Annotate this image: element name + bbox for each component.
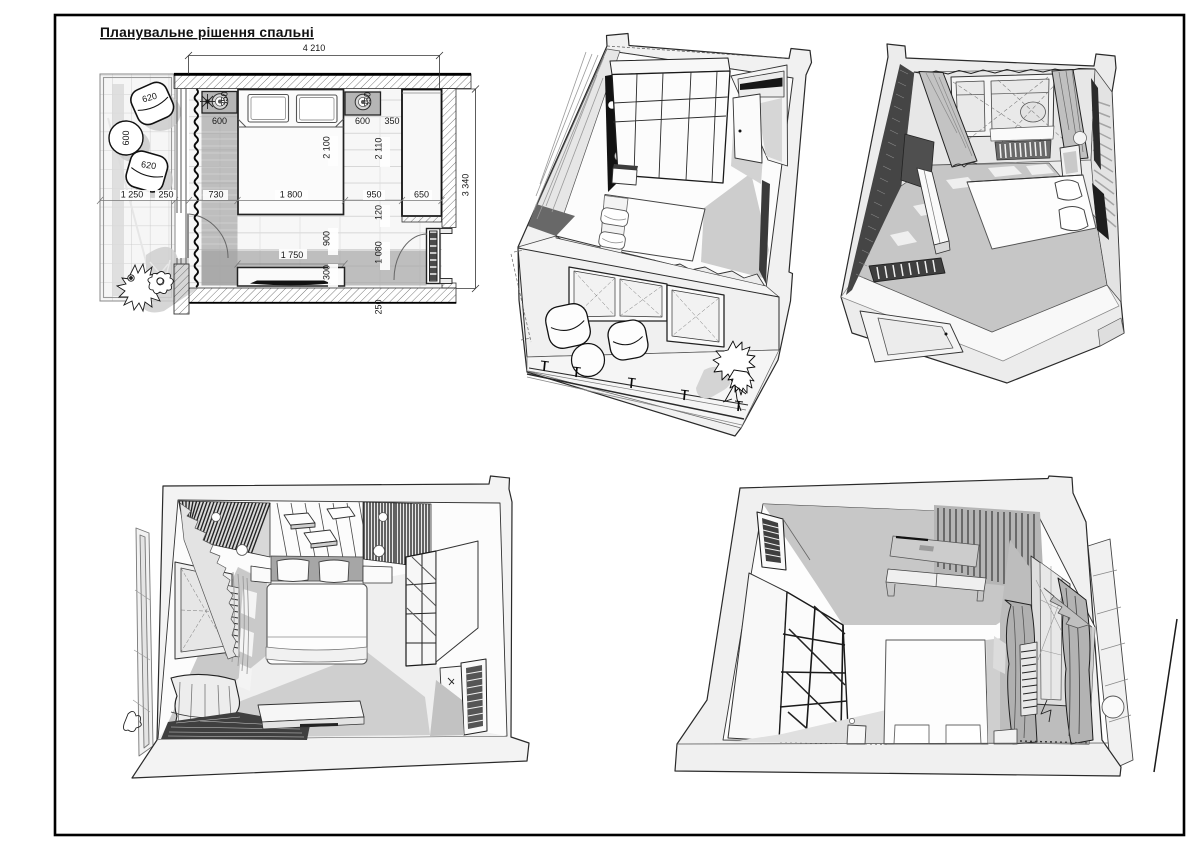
- svg-text:900: 900: [322, 231, 332, 246]
- svg-text:350: 350: [363, 92, 373, 107]
- svg-text:4 210: 4 210: [303, 43, 326, 53]
- svg-text:1 250: 1 250: [121, 190, 144, 200]
- svg-text:2 110: 2 110: [374, 138, 384, 160]
- svg-text:650: 650: [414, 190, 429, 200]
- svg-text:730: 730: [208, 190, 223, 200]
- svg-text:120: 120: [374, 205, 384, 220]
- svg-text:950: 950: [366, 190, 381, 200]
- svg-text:1 080: 1 080: [374, 241, 384, 264]
- svg-text:350: 350: [384, 116, 399, 126]
- svg-text:350: 350: [220, 91, 230, 106]
- svg-text:3 340: 3 340: [461, 174, 471, 197]
- svg-text:2 100: 2 100: [322, 136, 332, 159]
- svg-text:620: 620: [141, 159, 157, 171]
- svg-text:300: 300: [322, 265, 332, 280]
- svg-text:1 750: 1 750: [281, 250, 304, 260]
- svg-text:1 800: 1 800: [280, 190, 303, 200]
- svg-text:600: 600: [355, 116, 370, 126]
- svg-text:600: 600: [212, 116, 227, 126]
- svg-text:250: 250: [374, 299, 384, 314]
- svg-text:600: 600: [121, 130, 131, 145]
- svg-text:250: 250: [158, 190, 173, 200]
- svg-text:Планувальне рішення спальні: Планувальне рішення спальні: [100, 25, 314, 40]
